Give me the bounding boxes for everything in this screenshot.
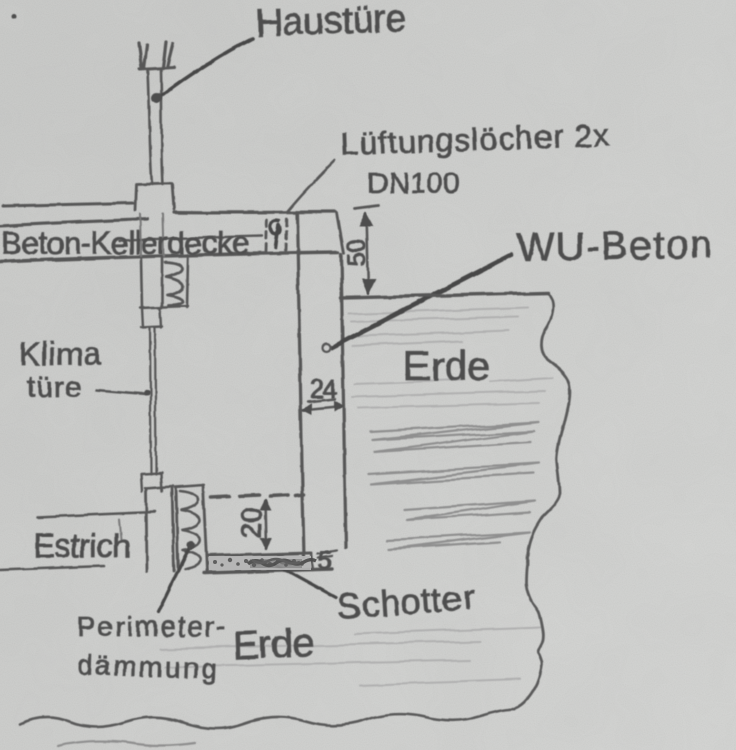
svg-text:WU-Beton: WU-Beton <box>516 223 713 270</box>
svg-text:DN100: DN100 <box>367 168 460 200</box>
svg-text:Beton-Kellerdecke: Beton-Kellerdecke <box>1 225 249 261</box>
svg-text:Haustüre: Haustüre <box>255 0 407 45</box>
svg-text:Perimeter-: Perimeter- <box>77 611 228 642</box>
svg-text:20: 20 <box>236 507 267 538</box>
svg-text:5: 5 <box>318 547 332 575</box>
svg-text:türe: türe <box>27 371 83 404</box>
svg-text:Erde: Erde <box>232 621 314 668</box>
svg-text:24: 24 <box>310 374 337 404</box>
svg-text:Estrich: Estrich <box>33 527 130 564</box>
svg-text:dämmung: dämmung <box>77 649 220 685</box>
svg-text:50: 50 <box>343 239 371 267</box>
svg-text:Klima: Klima <box>19 336 102 372</box>
svg-text:Erde: Erde <box>403 342 490 389</box>
